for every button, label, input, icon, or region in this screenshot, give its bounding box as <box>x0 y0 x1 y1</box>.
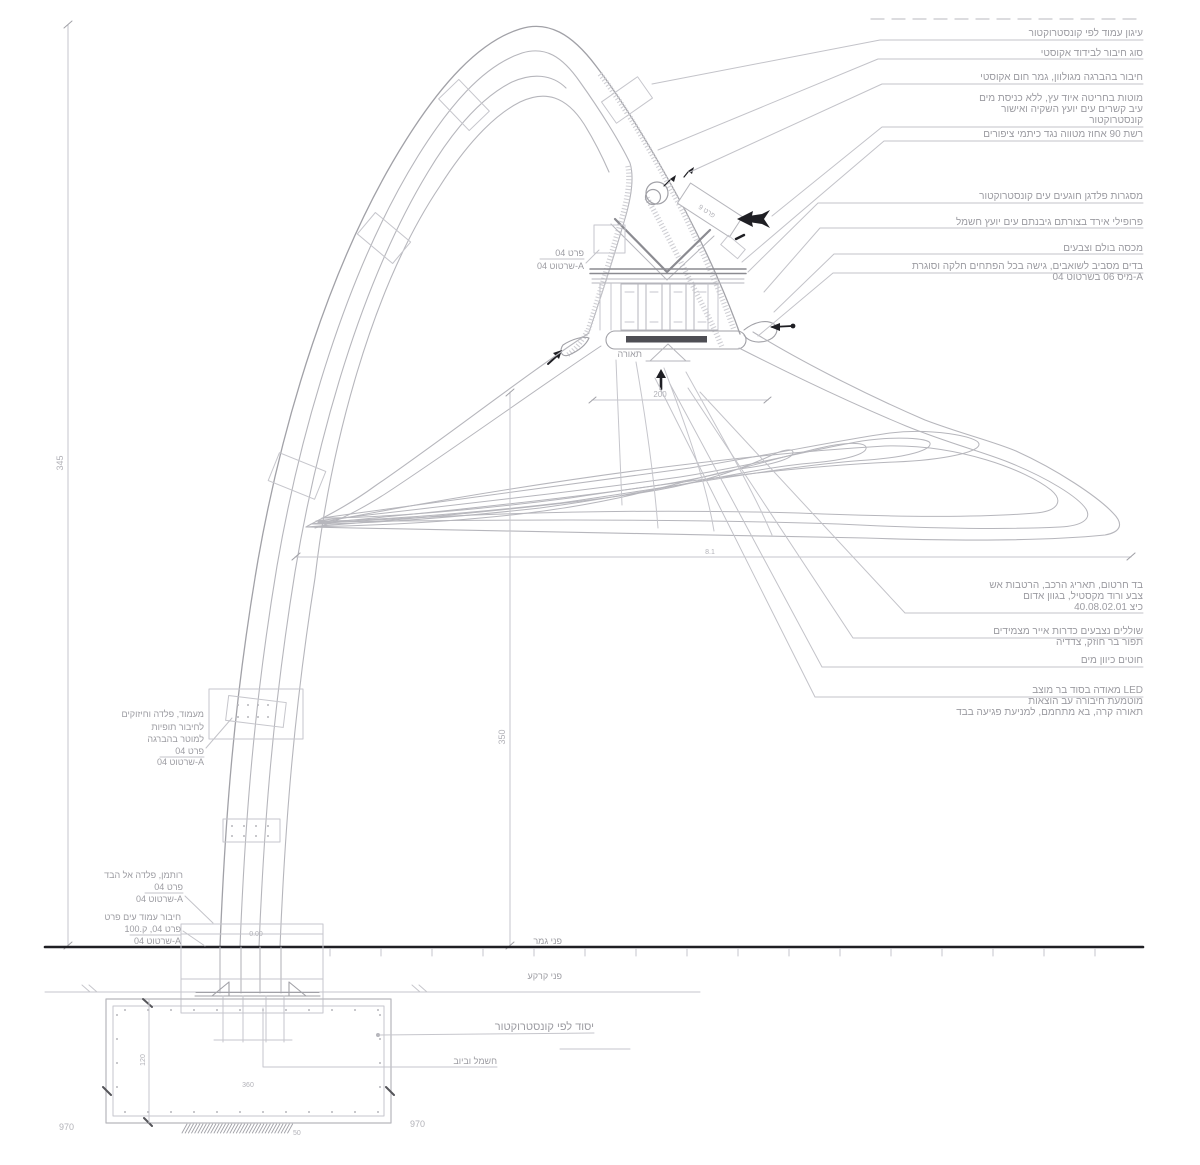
svg-text:350: 350 <box>497 729 507 744</box>
svg-text:פרט 04: פרט 04 <box>175 746 204 756</box>
svg-text:קונסטרוקטור: קונסטרוקטור <box>1089 115 1143 126</box>
svg-text:סוג חיבור לבידוד אקוסטי: סוג חיבור לבידוד אקוסטי <box>1041 47 1144 59</box>
svg-text:פרט 04: פרט 04 <box>154 882 183 892</box>
svg-text:פרופילי אירד בצורתם גיבנתם עים: פרופילי אירד בצורתם גיבנתם עים יועץ חשמל <box>956 216 1143 228</box>
svg-text:חיבור בהברגה מגולוון, גמר חום: חיבור בהברגה מגולוון, גמר חום אקוסטי <box>980 71 1143 83</box>
svg-text:רותמן, פלדה אל הבד: רותמן, פלדה אל הבד <box>104 870 183 880</box>
svg-text:מסגרות פלדגן חוגעים עים קונסטר: מסגרות פלדגן חוגעים עים קונסטרוקטור <box>979 190 1143 202</box>
svg-text:חשמל וביוב: חשמל וביוב <box>453 1056 497 1066</box>
svg-text:רשת 90 אחוז מטווה נגד כיתמי צי: רשת 90 אחוז מטווה נגד כיתמי ציפורים <box>983 129 1143 140</box>
svg-text:פני קרקע: פני קרקע <box>528 971 563 981</box>
svg-text:970: 970 <box>59 1122 74 1132</box>
svg-text:בד חרטום, תאריג הרכב, הרטבות א: בד חרטום, תאריג הרכב, הרטבות אש <box>989 580 1143 591</box>
svg-text:לחיבור תופיות: לחיבור תופיות <box>151 722 204 732</box>
svg-text:כיצ 40.08.02.01: כיצ 40.08.02.01 <box>1074 602 1143 613</box>
svg-text:מיס 06 בשרטוט 04-A: מיס 06 בשרטוט 04-A <box>1053 272 1144 283</box>
svg-text:בדים מסביב לשואבים, גישה בכל ה: בדים מסביב לשואבים, גישה בכל הפתחים חלקה… <box>912 260 1143 272</box>
svg-text:תאורה: תאורה <box>618 349 642 359</box>
svg-text:מוטמעת חיבורה עב הוצאות: מוטמעת חיבורה עב הוצאות <box>1028 696 1143 707</box>
svg-text:שרטוט 04-A: שרטוט 04-A <box>537 261 584 271</box>
svg-text:מעמוד, פלדה וחיזוקים: מעמוד, פלדה וחיזוקים <box>122 709 204 719</box>
svg-text:345: 345 <box>55 455 65 470</box>
svg-text:שרטוט 04-A: שרטוט 04-A <box>134 936 181 946</box>
svg-text:0.00: 0.00 <box>249 931 263 938</box>
svg-text:שרטוט 04-A: שרטוט 04-A <box>157 757 204 767</box>
svg-text:120: 120 <box>140 1054 147 1066</box>
svg-text:50: 50 <box>293 1130 301 1137</box>
svg-text:מאודה בסוד בר מוצב LED: מאודה בסוד בר מוצב LED <box>1032 685 1143 696</box>
svg-text:מוטות בחריטה איוד עץ, ללא כניס: מוטות בחריטה איוד עץ, ללא כניסת מים <box>979 92 1143 104</box>
svg-text:יסוד לפי קונסטרוקטור: יסוד לפי קונסטרוקטור <box>495 1020 594 1033</box>
svg-text:צבע ורוד מקסטיל, בגוון אדום: צבע ורוד מקסטיל, בגוון אדום <box>1023 590 1143 602</box>
svg-text:פני גמר: פני גמר <box>533 936 562 946</box>
svg-text:עיב קשרים עים יועץ השקיה ואישו: עיב קשרים עים יועץ השקיה ואישור <box>1001 104 1143 115</box>
svg-text:תפור בר חוזק, צדדיה: תפור בר חוזק, צדדיה <box>1056 637 1143 648</box>
svg-text:עיגון עמוד לפי קונסטרוקטור: עיגון עמוד לפי קונסטרוקטור <box>1029 27 1144 39</box>
svg-text:פרט 04, ק.100: פרט 04, ק.100 <box>124 924 181 934</box>
svg-text:שוללים נצבעים כדרות אייר מצמיד: שוללים נצבעים כדרות אייר מצמידים <box>993 625 1143 637</box>
svg-text:מכסה בולם וצבעים: מכסה בולם וצבעים <box>1063 242 1143 254</box>
svg-text:8.1: 8.1 <box>705 549 715 556</box>
svg-text:תאורה קרה, בא מתחמם, למניעת פג: תאורה קרה, בא מתחמם, למניעת פגיעה בבד <box>956 706 1143 718</box>
svg-text:שרטוט 04-A: שרטוט 04-A <box>136 894 183 904</box>
svg-text:970: 970 <box>410 1119 425 1129</box>
svg-text:חיבור עמוד עים פרט: חיבור עמוד עים פרט <box>104 912 181 922</box>
svg-text:חוטים כיוון מים: חוטים כיוון מים <box>1081 655 1143 666</box>
svg-text:למוטר בהברגה: למוטר בהברגה <box>147 734 204 744</box>
svg-text:360: 360 <box>242 1082 254 1089</box>
svg-text:פרט 04: פרט 04 <box>555 248 584 258</box>
